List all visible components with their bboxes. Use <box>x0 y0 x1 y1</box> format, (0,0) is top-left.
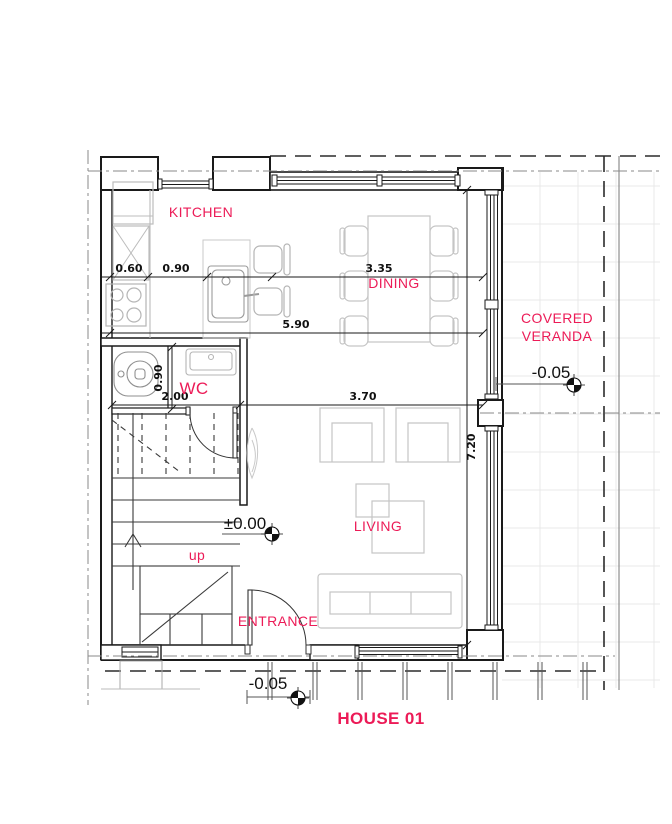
veranda-label-line2: VERANDA <box>522 328 593 344</box>
stair-direction-arrow <box>125 413 141 590</box>
level-entrance-value: -0.05 <box>249 674 288 693</box>
veranda-tile-grid <box>502 172 660 688</box>
interior-walls <box>101 338 247 505</box>
level-markers: ±0.00 -0.05 -0.05 <box>222 363 585 709</box>
washbasin <box>186 349 236 375</box>
dimensions: 0.60 0.90 3.35 5.90 2.00 3.70 0.90 7.20 <box>101 186 487 649</box>
centerlines <box>88 150 660 705</box>
dim-090-wc: 0.90 <box>152 364 165 391</box>
level-interior-value: ±0.00 <box>224 514 266 533</box>
veranda-label-line1: COVERED <box>521 310 593 326</box>
armchair <box>396 408 460 462</box>
exterior-step <box>120 661 162 689</box>
level-entrance: -0.05 <box>247 674 310 709</box>
floor-plan-svg: 0.60 0.90 3.35 5.90 2.00 3.70 0.90 7.20 … <box>0 0 672 824</box>
sofa <box>318 574 462 628</box>
wc-fixtures <box>114 349 236 396</box>
level-interior: ±0.00 <box>222 514 283 545</box>
kitchen-sink <box>208 266 259 322</box>
dining-label: DINING <box>368 275 419 291</box>
armchair <box>320 408 384 462</box>
entrance-label: ENTRANCE <box>238 613 318 629</box>
dim-090: 0.90 <box>162 262 189 275</box>
living-label: LIVING <box>354 518 402 534</box>
dimension-line-right-vertical <box>463 186 471 649</box>
windows <box>122 175 498 658</box>
level-veranda-value: -0.05 <box>532 363 571 382</box>
floor-plan-drawing: 0.60 0.90 3.35 5.90 2.00 3.70 0.90 7.20 … <box>0 0 672 824</box>
dim-720: 7.20 <box>465 433 478 460</box>
drawing-title: HOUSE 01 <box>337 709 424 728</box>
staircase <box>112 413 240 645</box>
stairs-up-label: up <box>189 547 205 563</box>
roof-overhang-outline <box>105 156 660 690</box>
dim-060: 0.60 <box>115 262 142 275</box>
wc-label: WC <box>179 379 208 398</box>
bar-stools <box>254 244 290 317</box>
dimension-line-top <box>101 273 487 281</box>
dim-590: 5.90 <box>282 318 309 331</box>
level-datum-icon <box>287 687 309 709</box>
plant <box>247 428 258 478</box>
kitchen-label: KITCHEN <box>169 204 233 220</box>
dim-370: 3.70 <box>349 390 376 403</box>
dim-335: 3.35 <box>365 262 392 275</box>
